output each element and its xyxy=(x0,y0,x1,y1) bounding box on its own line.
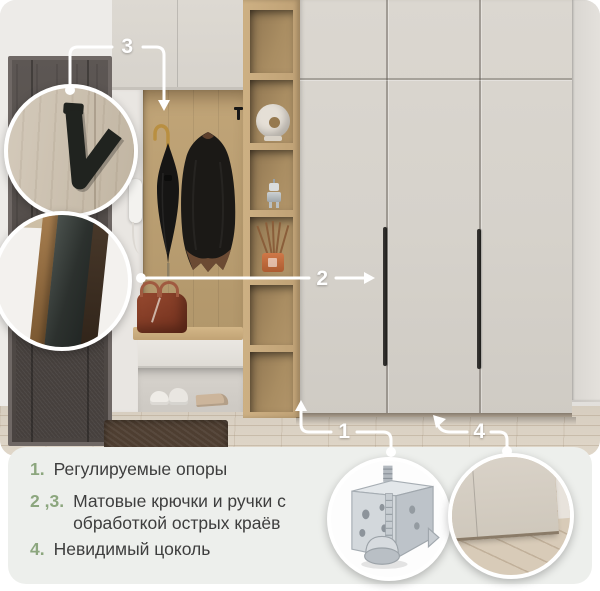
legend-number: 4. xyxy=(30,538,45,560)
adjustable-foot-icon xyxy=(331,461,447,577)
handbag-handle xyxy=(159,281,179,297)
bench-drawer xyxy=(138,340,243,368)
wardrobe xyxy=(300,0,572,417)
wardrobe-top-seam xyxy=(300,78,572,80)
shelf-cubby xyxy=(250,10,293,73)
door-seam xyxy=(471,453,479,537)
plinth-icon xyxy=(448,453,559,542)
sneaker xyxy=(169,388,188,405)
legend-item-4: 4. Невидимый цоколь xyxy=(30,538,210,560)
robot-leg xyxy=(276,202,279,208)
handbag-handle xyxy=(140,281,160,297)
handbag xyxy=(137,293,187,333)
legend-text: Регулируемые опоры xyxy=(54,458,228,480)
callout-1-label: 1 xyxy=(338,420,349,444)
right-wall xyxy=(572,0,600,402)
legend-number: 2 ,3. xyxy=(30,490,64,512)
door-handle-end xyxy=(465,455,470,469)
sneaker xyxy=(150,391,169,405)
hook-icon xyxy=(8,88,134,214)
coat-hook xyxy=(237,107,240,120)
hook-closeup-inset xyxy=(4,84,138,218)
callout-3-label: 3 xyxy=(121,35,132,59)
diffuser-label xyxy=(268,258,277,267)
legend-number: 1. xyxy=(30,458,45,480)
reed-diffuser-bottle xyxy=(262,253,284,272)
shelf-cubby xyxy=(250,352,293,412)
handbag-chain xyxy=(151,297,161,322)
callout-4-label: 4 xyxy=(473,420,484,444)
product-infographic: 1. Регулируемые опоры 2 ,3. Матовые крюч… xyxy=(0,0,600,591)
heel-shoes xyxy=(196,393,229,407)
coat xyxy=(176,130,240,282)
cabinet-seam xyxy=(177,0,178,87)
robot-figurine xyxy=(263,181,285,208)
shelf-cubby xyxy=(250,285,293,345)
wardrobe-handle xyxy=(477,229,481,369)
vase-hole xyxy=(269,117,280,128)
shelf-column xyxy=(243,0,300,418)
robot-body xyxy=(267,192,281,202)
legend-text: Невидимый цоколь xyxy=(54,538,211,560)
plinth-closeup-inset xyxy=(448,453,574,579)
legend-text: Матовые крючки и ручки с обработкой остр… xyxy=(73,490,325,535)
legend-item-2-3: 2 ,3. Матовые крючки и ручки с обработко… xyxy=(30,490,325,535)
wardrobe-handle xyxy=(383,227,387,366)
bench-under-space xyxy=(138,368,243,412)
callout-2-label: 2 xyxy=(316,267,327,291)
donut-vase xyxy=(256,104,290,138)
foot-closeup-inset xyxy=(327,457,451,581)
vase-base xyxy=(264,136,282,141)
legend-item-1: 1. Регулируемые опоры xyxy=(30,458,227,480)
robot-head xyxy=(269,183,279,191)
robot-leg xyxy=(269,202,272,208)
